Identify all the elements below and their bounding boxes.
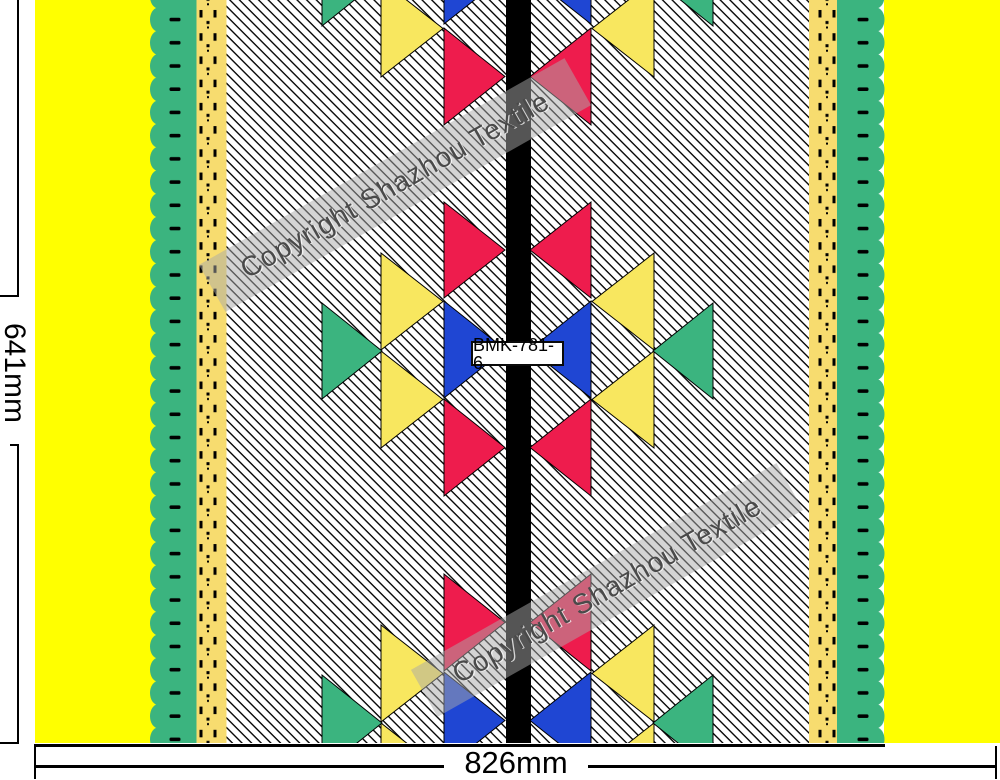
width-dim-tick-right bbox=[995, 746, 997, 779]
height-dim-tick-upper bbox=[0, 295, 19, 297]
height-dim-tick-mid bbox=[10, 444, 19, 446]
height-dim-line-top bbox=[17, 0, 19, 296]
width-dim-line-left bbox=[35, 765, 444, 768]
width-dim-line-right bbox=[588, 765, 996, 768]
pattern-bottom-border bbox=[35, 744, 885, 747]
design-code-label: BMK-781-6 bbox=[471, 341, 564, 366]
height-dim-line-bottom bbox=[17, 445, 19, 743]
yellow-field-right bbox=[884, 0, 1000, 743]
height-dim-tick-lower bbox=[0, 742, 19, 744]
width-dimension-text: 826mm bbox=[444, 748, 588, 780]
height-dimension-text: 641mm bbox=[0, 322, 30, 424]
width-dim-tick-left bbox=[34, 744, 36, 779]
textile-design-preview: Copyright Shazhou Textile Copyright Shaz… bbox=[0, 0, 1000, 780]
